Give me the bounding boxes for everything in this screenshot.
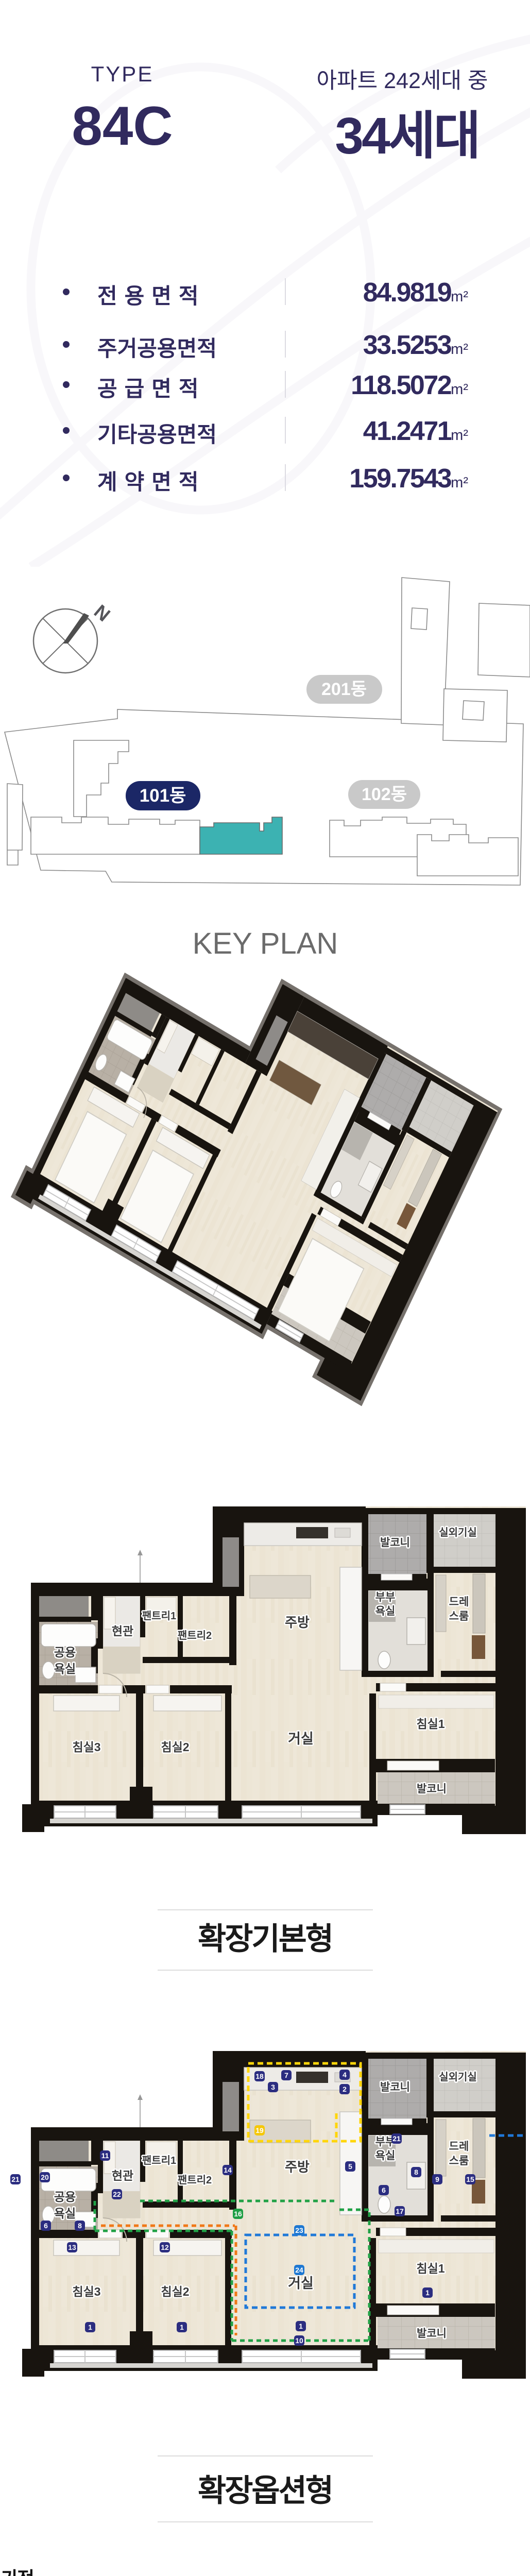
svg-text:8: 8 <box>414 2168 418 2176</box>
svg-text:102동: 102동 <box>362 785 407 804</box>
svg-text:19: 19 <box>255 2126 264 2134</box>
svg-text:16: 16 <box>234 2210 242 2218</box>
svg-text:N: N <box>90 601 114 626</box>
svg-text:101동: 101동 <box>140 786 186 806</box>
svg-text:21: 21 <box>11 2175 20 2183</box>
svg-text:24: 24 <box>295 2266 303 2274</box>
svg-text:20: 20 <box>41 2173 49 2181</box>
svg-text:12: 12 <box>161 2243 169 2251</box>
svg-text:15: 15 <box>466 2175 474 2183</box>
svg-text:11: 11 <box>101 2151 109 2160</box>
svg-text:10: 10 <box>295 2336 303 2345</box>
svg-text:1: 1 <box>299 2322 303 2330</box>
svg-text:8: 8 <box>78 2222 82 2230</box>
svg-text:1: 1 <box>88 2323 92 2331</box>
svg-text:3: 3 <box>271 2083 275 2091</box>
svg-text:6: 6 <box>44 2222 48 2230</box>
svg-text:22: 22 <box>113 2190 121 2198</box>
svg-text:21: 21 <box>392 2134 401 2143</box>
svg-text:17: 17 <box>396 2207 404 2215</box>
svg-text:1: 1 <box>180 2323 184 2331</box>
svg-text:1: 1 <box>425 2289 430 2297</box>
svg-text:18: 18 <box>255 2072 264 2080</box>
svg-text:23: 23 <box>295 2226 303 2234</box>
svg-text:4: 4 <box>343 2071 347 2079</box>
svg-text:14: 14 <box>224 2166 232 2174</box>
svg-text:5: 5 <box>348 2162 352 2171</box>
svg-text:13: 13 <box>68 2243 76 2251</box>
svg-text:7: 7 <box>284 2071 288 2079</box>
svg-text:9: 9 <box>435 2175 439 2183</box>
svg-text:2: 2 <box>343 2085 347 2093</box>
svg-text:6: 6 <box>382 2186 386 2194</box>
svg-text:KEY PLAN: KEY PLAN <box>193 927 338 960</box>
svg-text:201동: 201동 <box>321 680 367 699</box>
